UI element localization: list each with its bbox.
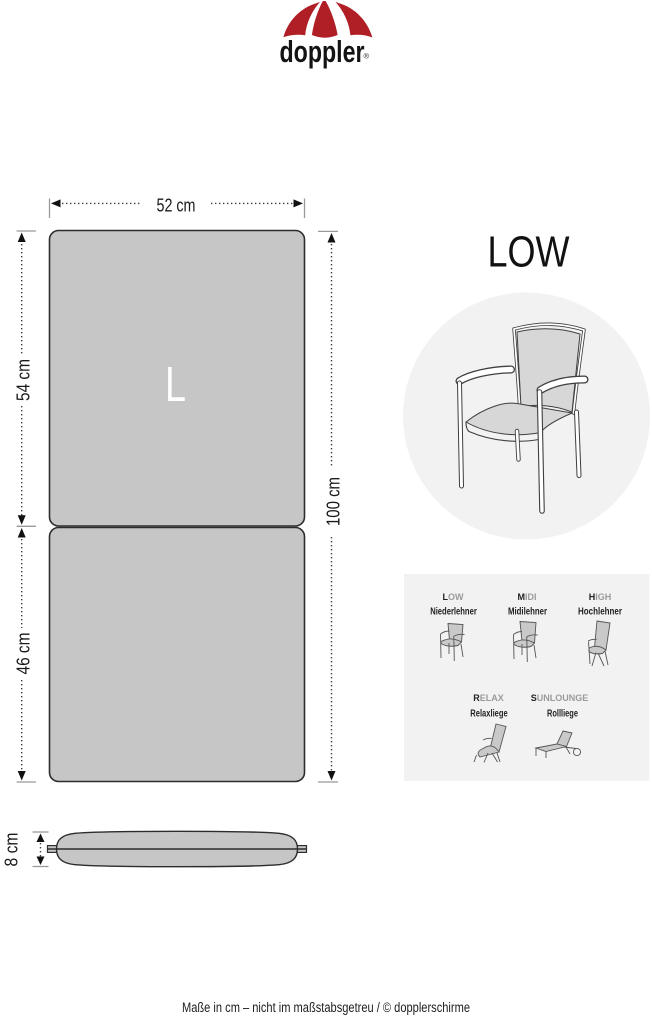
- svg-text:Midilehner: Midilehner: [508, 607, 547, 618]
- svg-text:®: ®: [364, 52, 370, 61]
- svg-text:54 cm: 54 cm: [14, 359, 34, 401]
- svg-text:L: L: [165, 358, 186, 412]
- svg-text:Rollliege: Rollliege: [547, 709, 578, 720]
- svg-text:Hochlehner: Hochlehner: [578, 607, 622, 618]
- svg-text:SUNLOUNGE: SUNLOUNGE: [531, 693, 589, 703]
- svg-text:52 cm: 52 cm: [157, 196, 196, 216]
- svg-text:Maße in cm – nicht im maßstabs: Maße in cm – nicht im maßstabsgetreu / ©…: [182, 1000, 470, 1015]
- svg-text:LOW: LOW: [488, 229, 570, 277]
- svg-text:doppler: doppler: [280, 34, 365, 69]
- svg-text:Niederlehner: Niederlehner: [430, 607, 477, 618]
- svg-text:RELAX: RELAX: [473, 693, 504, 703]
- svg-text:8 cm: 8 cm: [2, 833, 22, 867]
- svg-text:LOW: LOW: [443, 592, 465, 602]
- svg-text:Relaxliege: Relaxliege: [470, 709, 508, 720]
- svg-text:100 cm: 100 cm: [324, 477, 344, 526]
- svg-text:MIDI: MIDI: [517, 592, 536, 602]
- svg-text:HIGH: HIGH: [589, 592, 612, 602]
- svg-text:46 cm: 46 cm: [14, 633, 34, 675]
